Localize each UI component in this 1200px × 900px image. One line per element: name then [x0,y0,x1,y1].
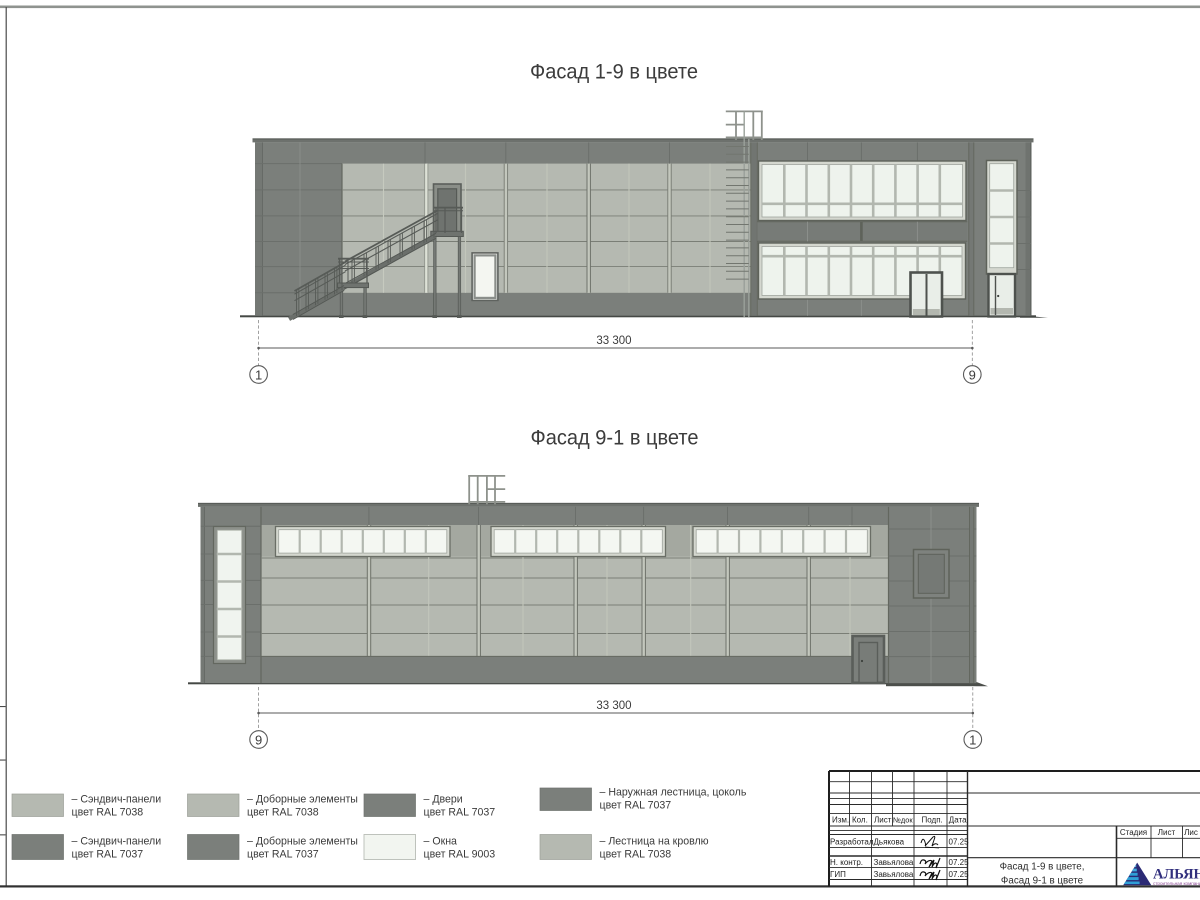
svg-text:– Сэндвич-панели: – Сэндвич-панели [72,794,162,806]
svg-text:цвет RAL 7038: цвет RAL 7038 [72,807,144,819]
svg-text:строительная компания: строительная компания [1153,881,1200,886]
svg-text:Подп.: Подп. [922,816,943,825]
svg-text:– Окна: – Окна [424,836,458,848]
svg-text:Н. контр.: Н. контр. [830,858,863,867]
svg-text:07.25: 07.25 [949,838,970,847]
svg-text:07.25: 07.25 [949,870,970,879]
svg-text:Дьякова: Дьякова [874,838,905,847]
svg-text:33 300: 33 300 [596,335,631,347]
svg-text:Завьялова: Завьялова [874,870,914,879]
svg-text:Фасад 1-9 в цвете: Фасад 1-9 в цвете [530,60,698,84]
svg-text:– Сэндвич-панели: – Сэндвич-панели [72,836,162,848]
svg-text:№док: №док [893,816,913,825]
svg-text:– Лестница на кровлю: – Лестница на кровлю [600,836,709,848]
svg-text:Лист: Лист [874,816,892,825]
svg-text:Фасад 1-9 в цвете,: Фасад 1-9 в цвете, [1000,862,1085,873]
svg-text:цвет RAL 7037: цвет RAL 7037 [247,849,319,861]
svg-text:Завьялова: Завьялова [874,858,914,867]
svg-text:ГИП: ГИП [830,870,846,879]
svg-text:Фасад 9-1 в цвете: Фасад 9-1 в цвете [1001,876,1084,887]
svg-text:Стадия: Стадия [1120,828,1147,837]
svg-text:– Доборные элементы: – Доборные элементы [247,794,358,806]
svg-text:Дата: Дата [949,816,967,825]
svg-text:1: 1 [255,367,262,382]
svg-text:Фасад 9-1 в цвете: Фасад 9-1 в цвете [531,426,699,450]
svg-text:9: 9 [255,732,262,747]
svg-text:Изм.: Изм. [832,816,849,825]
svg-text:07.25: 07.25 [949,858,970,867]
svg-text:– Доборные элементы: – Доборные элементы [247,836,358,848]
svg-text:цвет RAL 7037: цвет RAL 7037 [424,807,496,819]
svg-text:Лист: Лист [1158,828,1176,837]
svg-text:– Наружная лестница, цоколь: – Наружная лестница, цоколь [600,787,747,799]
svg-text:цвет RAL 7037: цвет RAL 7037 [72,849,144,861]
svg-text:9: 9 [969,367,976,382]
svg-text:33 300: 33 300 [596,700,631,712]
svg-text:Лис: Лис [1184,828,1198,837]
svg-text:1: 1 [969,732,976,747]
svg-text:Разработал: Разработал [830,838,874,847]
svg-text:цвет RAL 9003: цвет RAL 9003 [424,849,496,861]
svg-text:Кол.: Кол. [852,816,868,825]
svg-text:цвет RAL 7037: цвет RAL 7037 [600,800,672,812]
svg-text:цвет RAL 7038: цвет RAL 7038 [600,849,672,861]
svg-text:цвет RAL 7038: цвет RAL 7038 [247,807,319,819]
svg-text:– Двери: – Двери [424,794,463,806]
